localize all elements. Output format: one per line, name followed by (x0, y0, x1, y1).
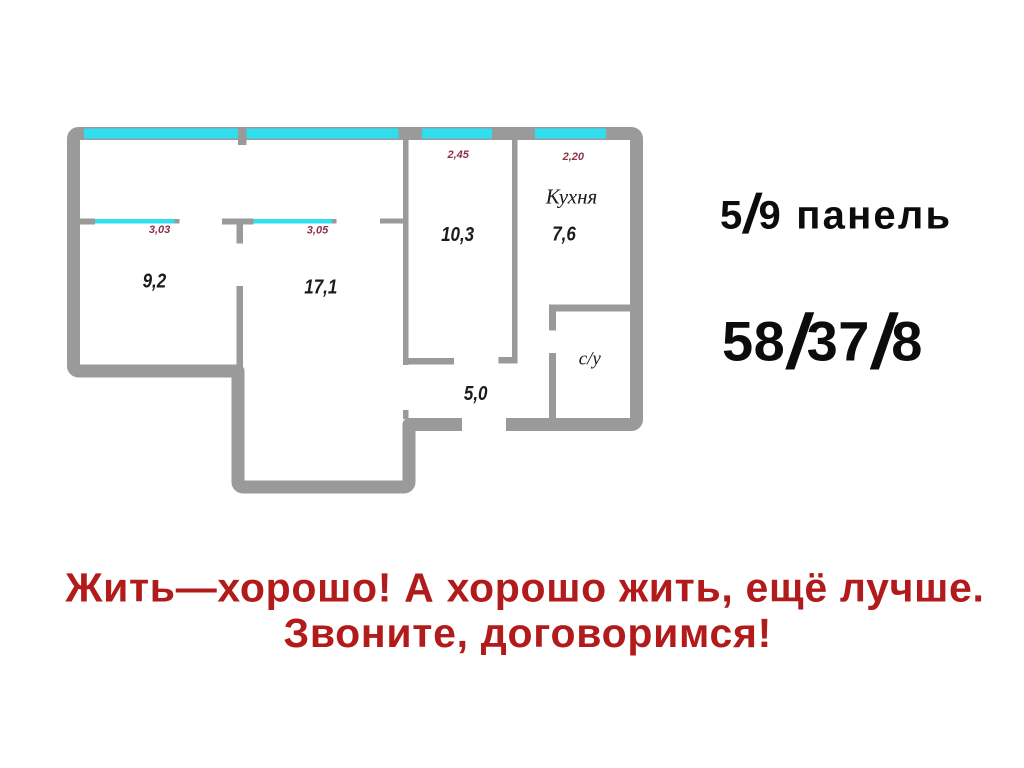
svg-text:2,45: 2,45 (446, 149, 469, 161)
svg-text:8: 8 (891, 310, 922, 373)
svg-text:7,6: 7,6 (552, 222, 576, 245)
svg-text:9,2: 9,2 (143, 269, 167, 292)
svg-text:2,20: 2,20 (562, 151, 585, 163)
svg-text:Кухня: Кухня (545, 184, 598, 208)
svg-text:58: 58 (722, 310, 785, 373)
svg-text:5: 5 (720, 194, 742, 238)
svg-text:3,03: 3,03 (149, 224, 170, 236)
svg-text:3,05: 3,05 (307, 225, 329, 237)
svg-text:Жить—хорошо! А хорошо жить, ещ: Жить—хорошо! А хорошо жить, ещё лучше. (64, 565, 984, 611)
svg-text:Звоните, договоримся!: Звоните, договоримся! (283, 610, 772, 656)
svg-text:5,0: 5,0 (464, 381, 488, 404)
svg-text:37: 37 (807, 310, 870, 373)
svg-text:10,3: 10,3 (441, 223, 475, 246)
svg-text:с/у: с/у (579, 349, 602, 370)
svg-text:9 панель: 9 панель (759, 194, 953, 238)
svg-text:17,1: 17,1 (304, 275, 337, 298)
